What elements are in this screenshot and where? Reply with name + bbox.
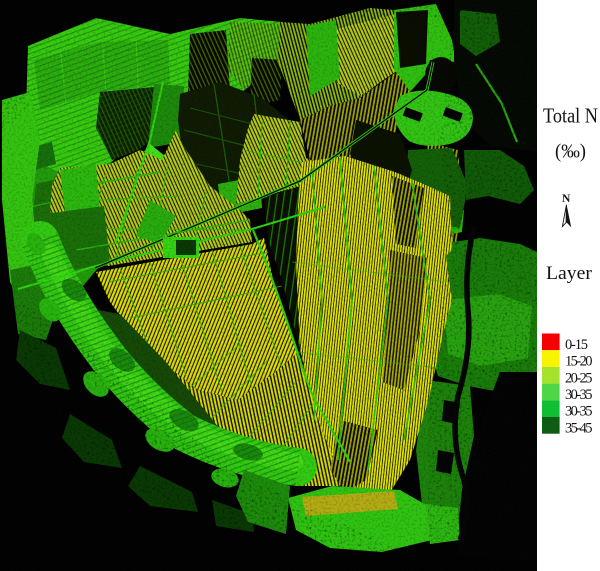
svg-text:30-35: 30-35 [565, 404, 593, 420]
svg-text:30-35: 30-35 [565, 387, 593, 403]
svg-text:N: N [562, 193, 571, 205]
svg-text:0-15: 0-15 [565, 337, 588, 353]
svg-text:Layer: Layer [546, 263, 593, 284]
svg-text:Total N: Total N [543, 104, 598, 128]
svg-text:20-25: 20-25 [565, 370, 593, 386]
svg-text:(‰): (‰) [555, 141, 586, 163]
svg-text:35-45: 35-45 [565, 420, 593, 436]
svg-text:15-20: 15-20 [565, 354, 593, 370]
